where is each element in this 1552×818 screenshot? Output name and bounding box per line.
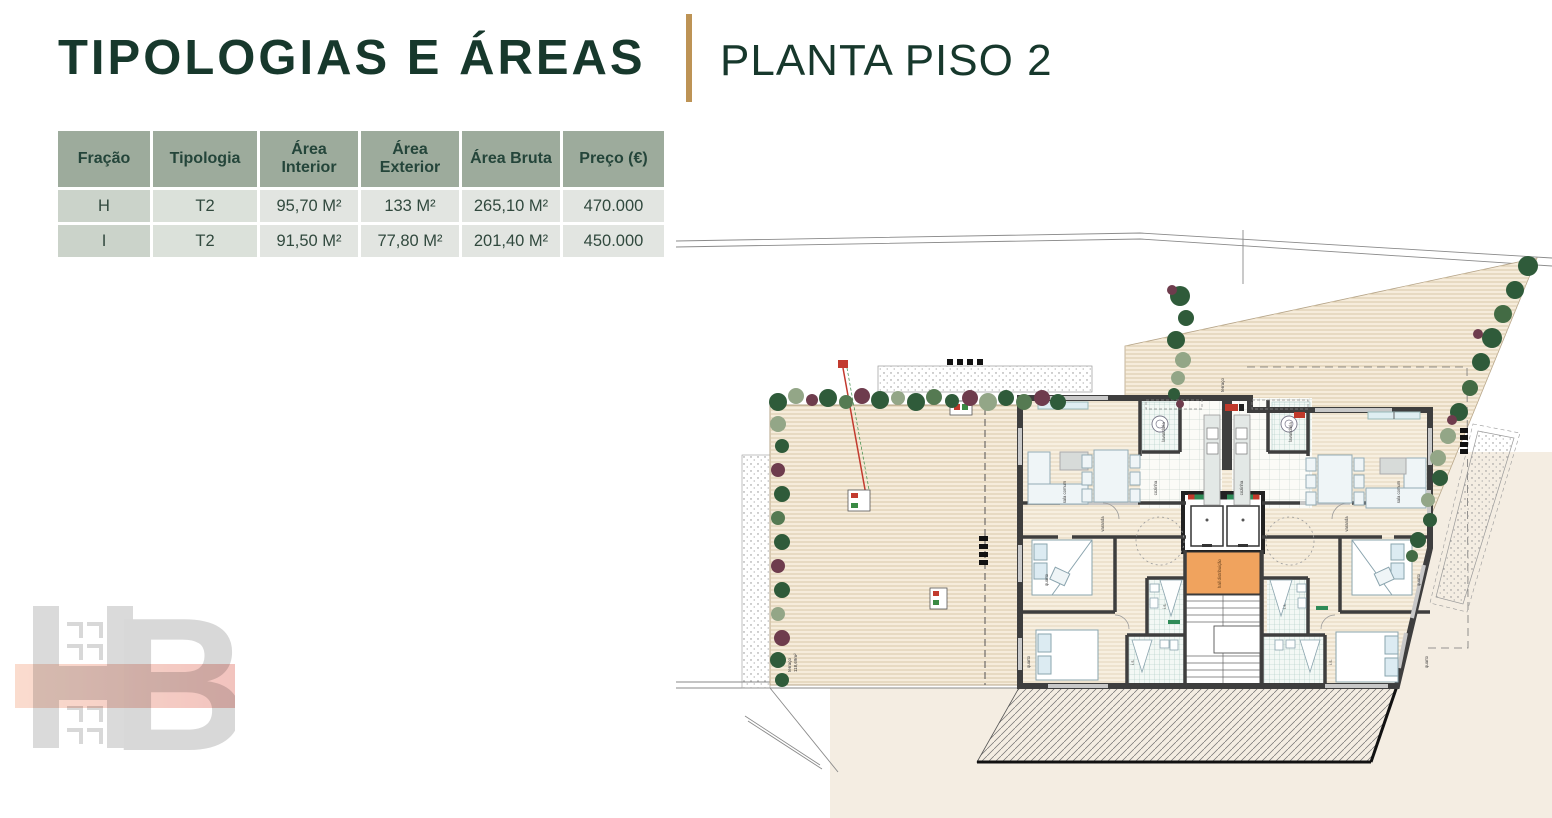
hatched-ramp: [977, 686, 1397, 762]
terrace-left-label: terraço: [787, 657, 792, 672]
typologies-table: Fração Tipologia Área Interior Área Exte…: [58, 131, 664, 257]
cell-h-preco: 470.000: [563, 190, 664, 222]
svg-text:varanda: varanda: [1344, 516, 1349, 532]
page-subtitle: PLANTA PISO 2: [720, 36, 1053, 86]
hall-label: hall distribuição: [1217, 558, 1222, 588]
hb-logo: B: [15, 598, 235, 773]
col-header-area-exterior: Área Exterior: [361, 131, 459, 187]
cell-i-area-exterior: 77,80 M²: [361, 225, 459, 257]
col-header-fracao: Fração: [58, 131, 150, 187]
svg-text:varanda: varanda: [1100, 516, 1105, 532]
svg-text:lavandaria: lavandaria: [1288, 422, 1293, 442]
cell-i-area-bruta: 201,40 M²: [462, 225, 560, 257]
terrace-right-label: terraço: [1220, 377, 1225, 392]
col-header-area-interior: Área Interior: [260, 131, 358, 187]
svg-text:sala comum: sala comum: [1062, 480, 1067, 503]
cell-h-tipologia: T2: [153, 190, 257, 222]
cell-h-fracao: H: [58, 190, 150, 222]
cell-h-area-bruta: 265,10 M²: [462, 190, 560, 222]
svg-text:quarto: quarto: [1416, 573, 1421, 586]
svg-text:i.s.: i.s.: [1328, 659, 1333, 664]
cell-i-tipologia: T2: [153, 225, 257, 257]
logo-pink-band: [15, 664, 235, 708]
svg-text:quarto: quarto: [1026, 655, 1031, 668]
svg-text:i.s.: i.s.: [1130, 659, 1135, 664]
building: hall distribuição: [1020, 398, 1430, 686]
page-title: TIPOLOGIAS E ÁREAS: [58, 30, 646, 86]
cell-h-area-interior: 95,70 M²: [260, 190, 358, 222]
col-header-area-bruta: Área Bruta: [462, 131, 560, 187]
cell-i-area-interior: 91,50 M²: [260, 225, 358, 257]
svg-text:cozinha: cozinha: [1153, 480, 1158, 495]
col-header-tipologia: Tipologia: [153, 131, 257, 187]
svg-text:sala comum: sala comum: [1396, 480, 1401, 503]
svg-text:i.s.: i.s.: [1282, 603, 1287, 608]
stairwell: [1186, 595, 1260, 684]
page: TIPOLOGIAS E ÁREAS PLANTA PISO 2 Fração …: [0, 0, 1552, 818]
hall-distribuicao: hall distribuição: [1186, 552, 1260, 594]
floor-plan: terraço 118,69m² terraço: [670, 225, 1552, 818]
svg-text:quarto: quarto: [1044, 573, 1049, 586]
svg-text:quarto: quarto: [1424, 655, 1429, 668]
svg-text:cozinha: cozinha: [1239, 480, 1244, 495]
svg-text:i.s.: i.s.: [1162, 603, 1167, 608]
cell-i-preco: 450.000: [563, 225, 664, 257]
elevator-core: [1183, 493, 1263, 552]
svg-text:lavandaria: lavandaria: [1161, 422, 1166, 442]
cell-i-fracao: I: [58, 225, 150, 257]
cell-h-area-exterior: 133 M²: [361, 190, 459, 222]
elevator-cabin-right: [1227, 506, 1259, 546]
title-divider: [686, 14, 692, 102]
terrace-left-area: 118,69m²: [793, 653, 798, 672]
col-header-preco: Preço (€): [563, 131, 664, 187]
elevator-cabin-left: [1191, 506, 1223, 546]
